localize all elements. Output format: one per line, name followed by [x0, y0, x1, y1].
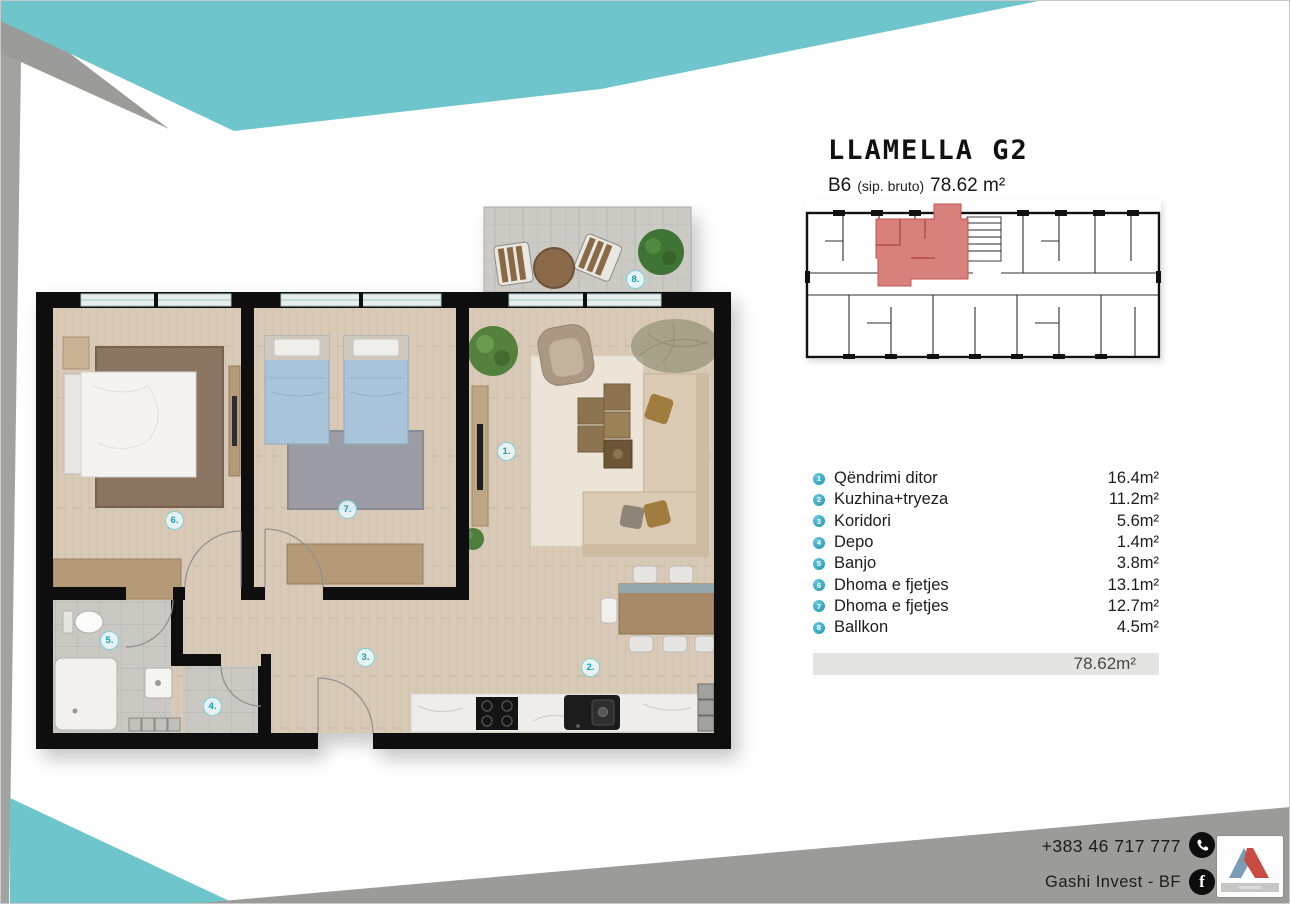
- single-bed-icon: [344, 336, 408, 444]
- toilet-icon: [75, 611, 103, 633]
- unit-code: B6: [828, 175, 851, 197]
- legend-number-badge: 1: [813, 473, 825, 485]
- legend-row: 5 Banjo 3.8m²: [813, 553, 1159, 574]
- legend-number-badge: 6: [813, 579, 825, 591]
- plant-icon: [468, 326, 518, 376]
- phone-icon: [1189, 832, 1215, 858]
- unit-subtitle: B6 (sip. bruto) 78.62 m²: [828, 175, 1029, 197]
- decor-plant-icon: [631, 319, 719, 373]
- balcony-chair-icon: [493, 242, 533, 286]
- sink-icon: [564, 695, 620, 730]
- room-marker-6: 6.: [165, 511, 184, 530]
- legend-number-badge: 3: [813, 515, 825, 527]
- legend-number-badge: 5: [813, 558, 825, 570]
- legend-room-area: 4.5m²: [1117, 618, 1159, 637]
- legend-room-area: 13.1m²: [1108, 576, 1159, 595]
- storage-floor: [183, 666, 271, 733]
- building-key-plan: [805, 199, 1161, 359]
- legend-room-label: Koridori: [834, 512, 891, 531]
- legend-room-label: Dhoma e fjetjes: [834, 576, 949, 595]
- teal-ribbon-top: [1, 1, 1039, 131]
- legend-room-area: 16.4m²: [1108, 469, 1159, 488]
- legend-room-area: 5.6m²: [1117, 512, 1159, 531]
- legend-room-label: Qëndrimi ditor: [834, 469, 938, 488]
- facebook-handle[interactable]: Gashi Invest - BF: [951, 873, 1181, 892]
- gross-area: 78.62 m²: [930, 175, 1005, 197]
- legend-row: 6 Dhoma e fjetjes 13.1m²: [813, 574, 1159, 595]
- legend-room-label: Kuzhina+tryeza: [834, 490, 948, 509]
- legend-row: 7 Dhoma e fjetjes 12.7m²: [813, 596, 1159, 617]
- room-marker-1: 1.: [497, 442, 516, 461]
- room-marker-2: 2.: [581, 658, 600, 677]
- legend-number-badge: 4: [813, 537, 825, 549]
- page-title: LLAMELLA G2: [828, 135, 1029, 166]
- balcony: [484, 207, 691, 292]
- room-marker-7: 7.: [338, 500, 357, 519]
- balcony-plant-icon: [638, 229, 684, 275]
- legend-room-label: Ballkon: [834, 618, 888, 637]
- company-logo: [1217, 836, 1283, 897]
- balcony-table-icon: [534, 248, 574, 288]
- teal-ribbon-bottom: [10, 798, 238, 904]
- room-legend: 1 Qëndrimi ditor 16.4m² 2 Kuzhina+tryeza…: [813, 468, 1159, 675]
- title-block: LLAMELLA G2 B6 (sip. bruto) 78.62 m²: [828, 135, 1029, 197]
- shower-icon: [55, 658, 117, 730]
- total-area-value: 78.62m²: [1074, 654, 1136, 674]
- floor-plan: [33, 206, 733, 753]
- legend-room-label: Banjo: [834, 554, 876, 573]
- legend-number-badge: 7: [813, 600, 825, 612]
- legend-row: 1 Qëndrimi ditor 16.4m²: [813, 468, 1159, 489]
- legend-row: 4 Depo 1.4m²: [813, 532, 1159, 553]
- room-marker-5: 5.: [100, 631, 119, 650]
- left-edge-strip: [1, 47, 21, 904]
- facebook-icon: f: [1189, 869, 1215, 895]
- logo-right-stroke: [1244, 848, 1269, 878]
- room-marker-8: 8.: [626, 270, 645, 289]
- windows: [81, 293, 661, 307]
- legend-room-area: 3.8m²: [1117, 554, 1159, 573]
- single-bed-icon: [265, 336, 329, 444]
- gross-label: (sip. bruto): [857, 178, 924, 194]
- cooktop-icon: [476, 697, 518, 730]
- legend-number-badge: 2: [813, 494, 825, 506]
- legend-row: 2 Kuzhina+tryeza 11.2m²: [813, 489, 1159, 510]
- legend-room-area: 1.4m²: [1117, 533, 1159, 552]
- brochure-page: 1. 2. 3. 4. 5. 6. 7. 8. LLAMELLA G2 B6 (…: [0, 0, 1290, 904]
- legend-row: 8 Ballkon 4.5m²: [813, 617, 1159, 638]
- legend-room-label: Depo: [834, 533, 873, 552]
- room-marker-4: 4.: [203, 697, 222, 716]
- bedroom-7-furniture: [265, 336, 423, 584]
- legend-room-area: 12.7m²: [1108, 597, 1159, 616]
- total-area-bar: 78.62m²: [813, 653, 1159, 675]
- legend-room-area: 11.2m²: [1109, 490, 1159, 509]
- phone-number[interactable]: +383 46 717 777: [951, 836, 1181, 857]
- legend-room-label: Dhoma e fjetjes: [834, 597, 949, 616]
- room-marker-3: 3.: [356, 648, 375, 667]
- legend-number-badge: 8: [813, 622, 825, 634]
- legend-row: 3 Koridori 5.6m²: [813, 511, 1159, 532]
